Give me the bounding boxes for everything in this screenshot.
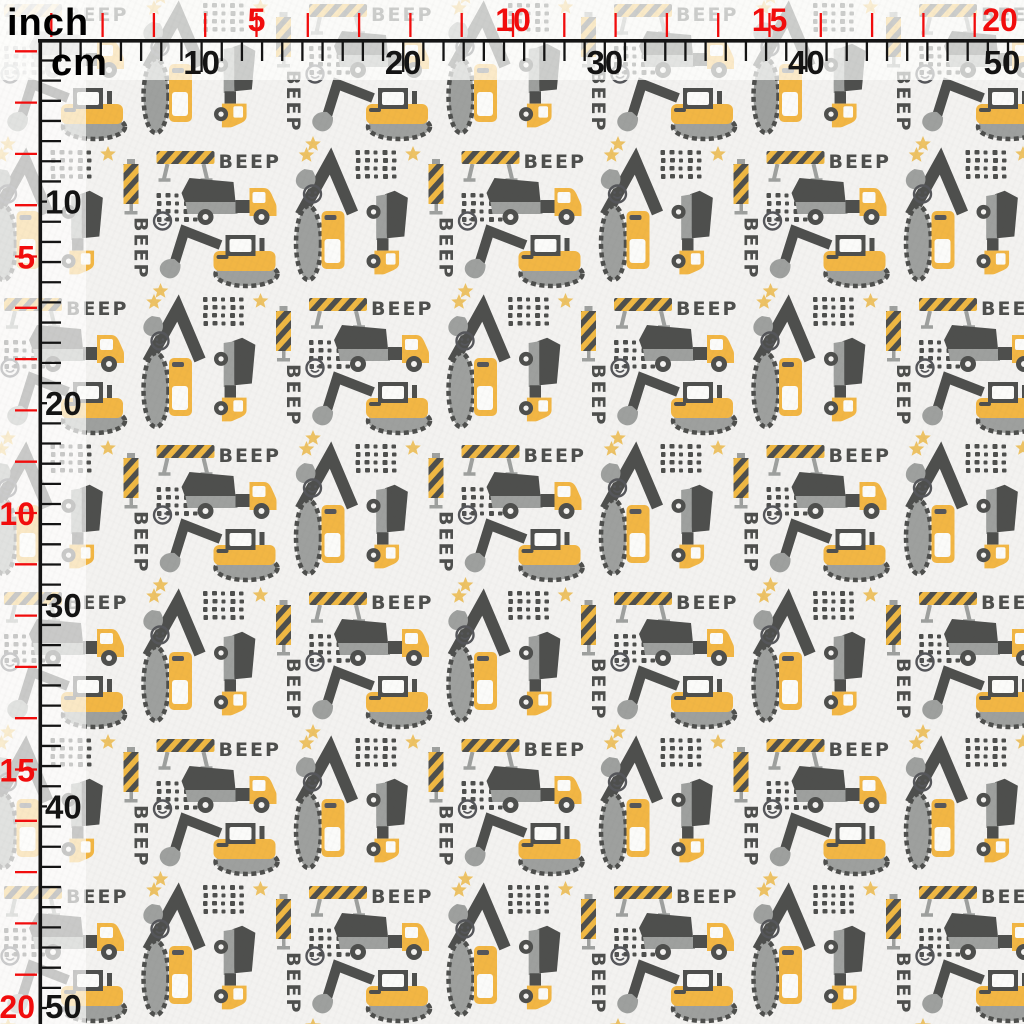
left-inch-label-10: 10 [0,496,35,532]
ruler-overlay: 1020304050510152010203040505101520 [0,0,1024,1024]
left-inch-label-15: 15 [0,753,35,789]
top-inch-label-5: 5 [248,2,266,38]
left-cm-label-30: 30 [45,587,82,624]
top-inch-label-15: 15 [752,2,788,38]
top-cm-label-40: 40 [788,44,825,81]
left-inch-label-5: 5 [17,240,35,276]
left-cm-label-40: 40 [45,788,82,825]
top-cm-label-50: 50 [984,44,1021,81]
left-cm-label-10: 10 [45,184,82,221]
left-ruler-line [39,39,43,1024]
top-cm-label-10: 10 [183,44,220,81]
top-inch-label-10: 10 [495,2,531,38]
top-inch-label-20: 20 [982,2,1018,38]
left-inch-label-20: 20 [0,989,35,1024]
top-cm-label-20: 20 [385,44,422,81]
fabric-swatch-preview: BEEP BEEP [0,0,1024,1024]
ruler-number-labels: 1020304050510152010203040505101520 [0,2,1020,1024]
inch-unit-label: inch [7,4,89,42]
left-cm-label-20: 20 [45,385,82,422]
top-ruler-line [38,39,1024,43]
top-cm-label-30: 30 [586,44,623,81]
left-cm-label-50: 50 [45,988,82,1024]
cm-unit-label: cm [51,44,108,82]
